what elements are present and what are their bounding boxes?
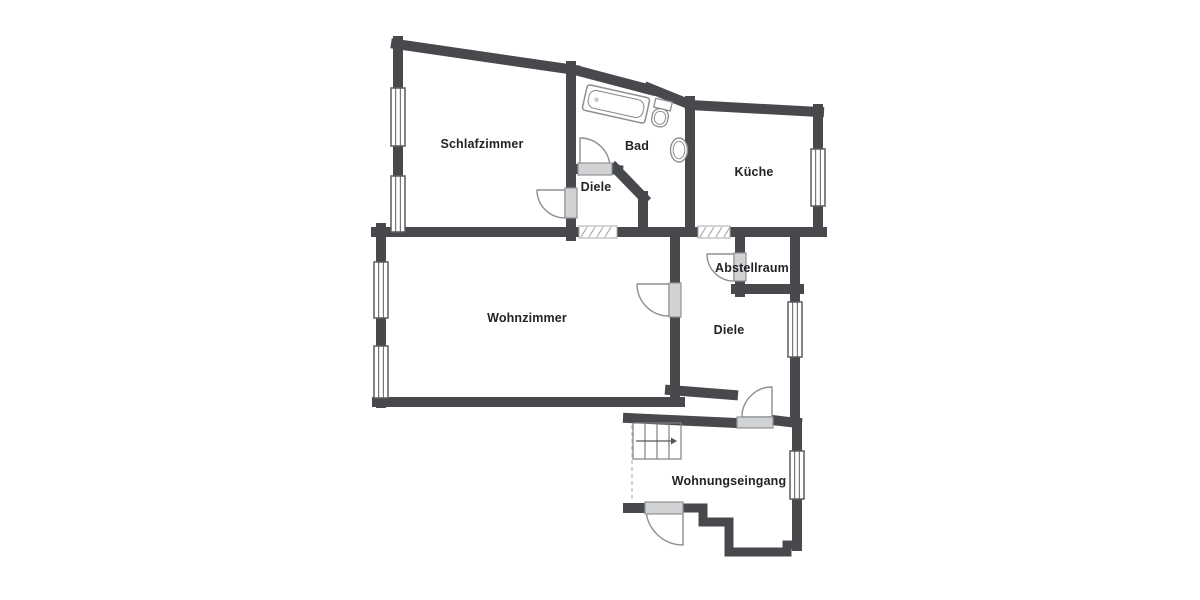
wall-schlafzimmer-top [396,44,575,70]
sill-bad [578,163,612,175]
window-eingang [790,451,804,499]
floorplan-page: Schlafzimmer Bad Diele Küche Wohnzimmer … [0,0,1200,600]
sill-diele-eingang [737,417,773,428]
stairs-arrow-head [671,438,677,445]
window-wohnzimmer-2 [374,346,388,398]
room-label-wohnungseingang: Wohnungseingang [672,474,787,488]
door-wohnzimmer-arc [637,284,669,316]
room-label-kueche: Küche [735,165,774,179]
room-label-diele-oben: Diele [581,180,612,194]
floorplan-svg [0,0,1200,600]
window-kueche [811,149,825,206]
window-schlafzimmer-2 [391,176,405,232]
wall-eingang-bottom-zigzag [684,508,797,552]
window-diele [788,302,802,357]
room-label-abstellraum: Abstellraum [715,261,789,275]
window-wohnzimmer-1 [374,262,388,318]
room-label-schlafzimmer: Schlafzimmer [440,137,523,151]
door-schlafzimmer-arc [537,190,565,218]
sill-haustuer [645,502,683,514]
wall-eingang-top [628,418,737,423]
wall-diele-bottom-slant [670,390,733,395]
room-label-diele-unten: Diele [714,323,745,337]
door-diele-eingang-arc [742,387,772,417]
sill-wohnzimmer [669,283,681,317]
sink-basin [673,141,685,159]
wall-kueche-top [690,105,819,112]
toilet-icon [650,98,673,128]
room-label-wohnzimmer: Wohnzimmer [487,311,567,325]
sill-schlafzimmer [565,188,577,218]
window-schlafzimmer-1 [391,88,405,146]
room-label-bad: Bad [625,139,649,153]
